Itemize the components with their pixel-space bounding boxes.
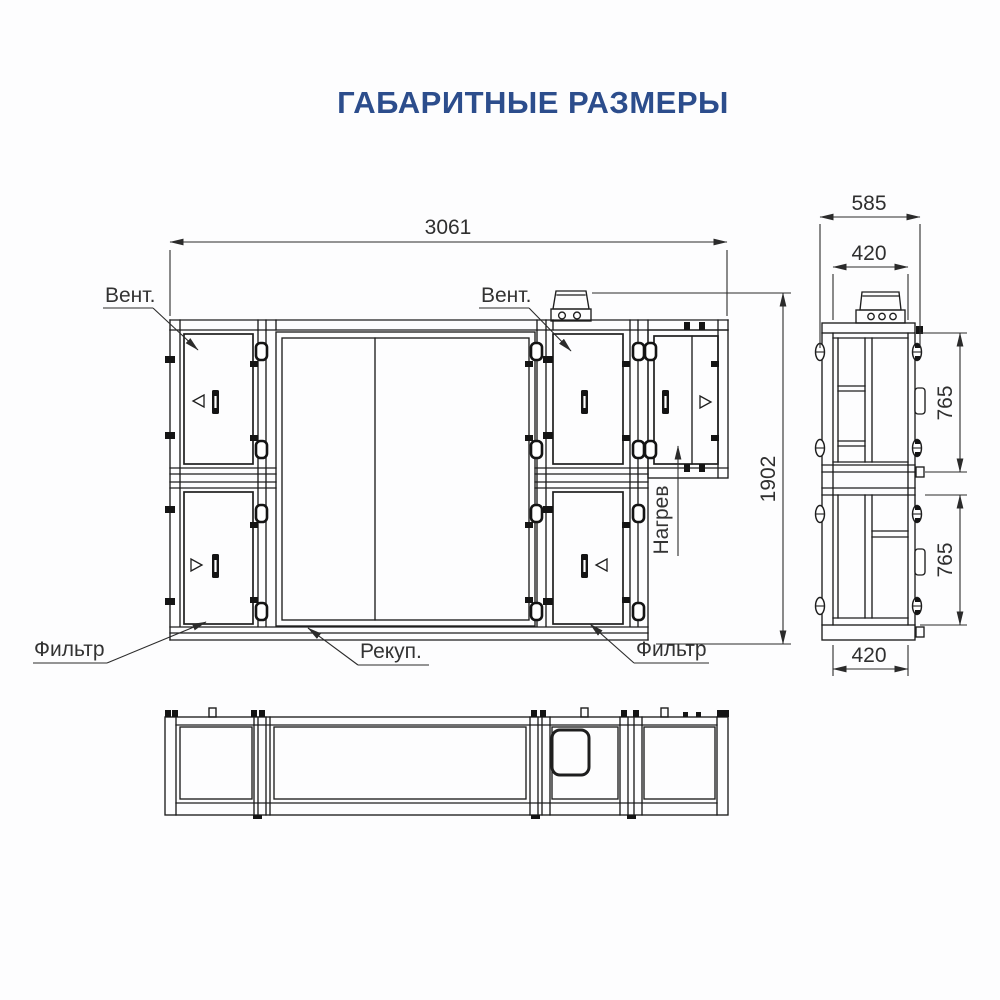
- airflow-triangle-right: [700, 396, 711, 408]
- door-handle: [662, 390, 669, 414]
- airflow-triangle-right: [191, 559, 202, 571]
- dim-depth-overall: 585: [851, 192, 886, 215]
- dim-bottom-duct-width: 420: [851, 644, 886, 667]
- dim-upper-module-height: 765: [934, 385, 957, 420]
- front-view: [165, 291, 728, 640]
- label-recuperator: Рекуп.: [360, 640, 422, 663]
- label-fan-right: Вент.: [481, 284, 531, 307]
- label-filter-right: Фильтр: [636, 638, 707, 661]
- access-port: [552, 730, 589, 775]
- dimensions-drawing: ГАБАРИТНЫЕ РАЗМЕРЫ: [0, 0, 1000, 1000]
- door-handle: [581, 390, 588, 414]
- page-title: ГАБАРИТНЫЕ РАЗМЕРЫ: [337, 85, 729, 120]
- junction-box-front: [551, 291, 591, 321]
- side-view: [816, 292, 926, 640]
- airflow-triangle-left: [193, 395, 204, 407]
- bottom-view: [165, 708, 729, 819]
- front-view-dimensions: 3061 1902: [170, 216, 791, 644]
- label-fan-left: Вент.: [105, 284, 155, 307]
- door-handle: [212, 554, 219, 578]
- heater-block: [648, 322, 728, 478]
- recuperator-block: [276, 332, 535, 626]
- dim-top-duct-width: 420: [851, 242, 886, 265]
- side-view-dimensions: 585 420 765 765 420: [820, 192, 967, 676]
- dim-lower-module-height: 765: [934, 542, 957, 577]
- dim-width: 3061: [425, 216, 472, 239]
- door-handle: [581, 554, 588, 578]
- dim-height: 1902: [757, 456, 780, 503]
- airflow-triangle-left: [596, 559, 607, 571]
- label-heater: Нагрев: [650, 485, 673, 554]
- junction-box-side: [856, 292, 905, 323]
- label-filter-left: Фильтр: [34, 638, 105, 661]
- door-handle: [212, 390, 219, 414]
